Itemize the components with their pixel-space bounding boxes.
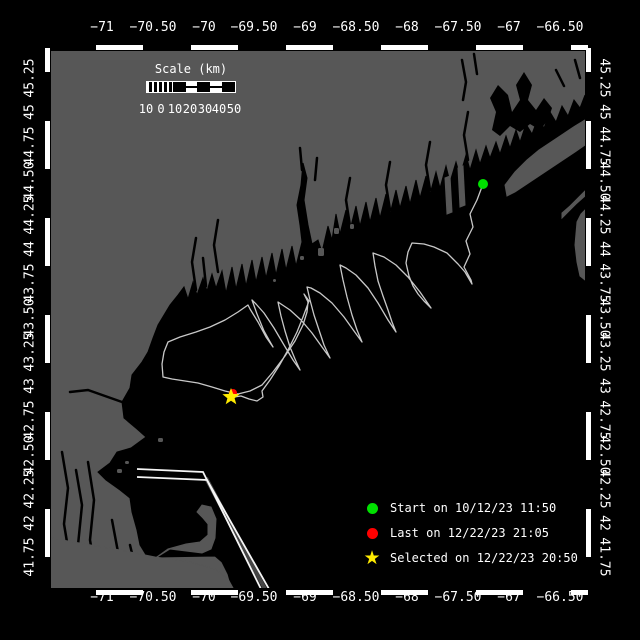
- x-tick-label-top: −70.50: [130, 20, 177, 35]
- passamaquoddy-bay: [490, 72, 552, 136]
- river-inlet: [76, 470, 82, 545]
- legend-item-label: Start on 10/12/23 11:50: [390, 501, 556, 515]
- axis-ruler-top: [48, 45, 588, 50]
- y-tick-label-right: 41.75: [597, 537, 612, 576]
- x-tick-label-top: −67: [497, 20, 520, 35]
- island: [158, 438, 163, 442]
- y-tick-label-left: 45.25: [23, 58, 38, 97]
- x-tick-label-top: −70: [192, 20, 215, 35]
- river-inlet: [315, 158, 317, 180]
- y-tick-label-left: 44: [23, 241, 38, 257]
- x-tick-label-top: −67.50: [435, 20, 482, 35]
- x-tick-label-bottom: −71: [90, 590, 113, 605]
- x-tick-label-top: −68: [395, 20, 418, 35]
- island: [273, 279, 276, 282]
- y-tick-label-left: 44.75: [23, 126, 38, 165]
- river-inlet: [300, 148, 302, 170]
- scale-bar-segment: [197, 82, 210, 92]
- legend-marker: [360, 503, 384, 514]
- scale-bar-segment: [222, 82, 235, 92]
- y-tick-label-right: 45: [597, 104, 612, 120]
- axis-ruler-left: [45, 48, 50, 590]
- x-tick-label-bottom: −66.50: [537, 590, 584, 605]
- y-tick-label-right: 42: [597, 515, 612, 531]
- legend-marker: [360, 528, 384, 539]
- legend-item-label: Selected on 12/22/23 20:50: [390, 551, 578, 565]
- y-tick-label-left: 41.75: [23, 537, 38, 576]
- scale-bar-title: Scale (km): [155, 62, 227, 76]
- river-inlet: [464, 112, 468, 160]
- y-tick-label-left: 42.25: [23, 469, 38, 508]
- island: [350, 224, 354, 229]
- island: [334, 228, 339, 234]
- legend-item: Last on 12/22/23 21:05: [360, 523, 549, 543]
- y-tick-label-left: 43.25: [23, 332, 38, 371]
- y-tick-label-right: 43.25: [597, 332, 612, 371]
- scale-bar-number: 20: [183, 102, 197, 116]
- scale-bar-number: 10: [139, 102, 153, 116]
- x-tick-label-top: −69: [293, 20, 316, 35]
- island: [318, 248, 324, 256]
- y-tick-label-right: 43.75: [597, 263, 612, 302]
- start-position-marker[interactable]: [478, 179, 488, 189]
- scale-bar-number: 0: [157, 102, 164, 116]
- scale-bar-labels: 1001020304050: [146, 102, 246, 116]
- river-inlet: [214, 220, 218, 272]
- x-tick-label-bottom: −67: [497, 590, 520, 605]
- x-tick-label-bottom: −68: [395, 590, 418, 605]
- y-tick-label-left: 43.75: [23, 263, 38, 302]
- y-tick-label-left: 45: [23, 104, 38, 120]
- legend-item-label: Last on 12/22/23 21:05: [390, 526, 549, 540]
- y-tick-label-right: 42.25: [597, 469, 612, 508]
- scale-bar-number: 40: [212, 102, 226, 116]
- y-tick-label-right: 44.75: [597, 126, 612, 165]
- x-tick-label-bottom: −69.50: [231, 590, 278, 605]
- river-inlet: [556, 70, 564, 86]
- river-inlet: [575, 60, 580, 78]
- x-tick-label-bottom: −70.50: [130, 590, 177, 605]
- island: [300, 256, 304, 260]
- legend-item: ★Selected on 12/22/23 20:50: [360, 548, 578, 568]
- drifter-track-map-window: −71−70.50−70−69.50−69−68.50−68−67.50−67−…: [0, 0, 640, 640]
- scale-bar-number: 30: [198, 102, 212, 116]
- scale-bar-hatch-segment: [147, 82, 173, 92]
- river-inlet: [462, 60, 466, 100]
- island: [117, 469, 122, 473]
- y-tick-label-right: 45.25: [597, 58, 612, 97]
- scale-bar-number: 10: [168, 102, 182, 116]
- y-tick-label-left: 43: [23, 378, 38, 394]
- x-tick-label-top: −66.50: [537, 20, 584, 35]
- x-tick-label-bottom: −68.50: [333, 590, 380, 605]
- river-inlet: [474, 54, 477, 74]
- y-tick-label-left: 42.75: [23, 400, 38, 439]
- y-tick-label-right: 43: [597, 378, 612, 394]
- y-tick-label-left: 44.25: [23, 195, 38, 234]
- river-inlet: [70, 390, 122, 402]
- scale-bar-graphic: [146, 81, 236, 93]
- x-tick-label-top: −68.50: [333, 20, 380, 35]
- y-tick-label-left: 42: [23, 515, 38, 531]
- scale-bar-segment: [173, 82, 186, 92]
- legend-item: Start on 10/12/23 11:50: [360, 498, 556, 518]
- scale-bar-segment: [210, 82, 222, 92]
- legend-star-icon: ★: [363, 552, 380, 564]
- scale-bar-number: 50: [227, 102, 241, 116]
- legend-dot-icon: [367, 503, 378, 514]
- island: [125, 461, 129, 464]
- y-tick-label-right: 44.25: [597, 195, 612, 234]
- scale-bar-segment: [186, 82, 198, 92]
- x-tick-label-top: −71: [90, 20, 113, 35]
- x-tick-label-bottom: −69: [293, 590, 316, 605]
- legend-dot-icon: [367, 528, 378, 539]
- x-tick-label-bottom: −67.50: [435, 590, 482, 605]
- x-tick-label-top: −69.50: [231, 20, 278, 35]
- x-tick-label-bottom: −70: [192, 590, 215, 605]
- y-tick-label-right: 44: [597, 241, 612, 257]
- axis-ruler-right: [586, 48, 591, 590]
- y-tick-label-right: 42.75: [597, 400, 612, 439]
- legend-marker: ★: [360, 552, 384, 564]
